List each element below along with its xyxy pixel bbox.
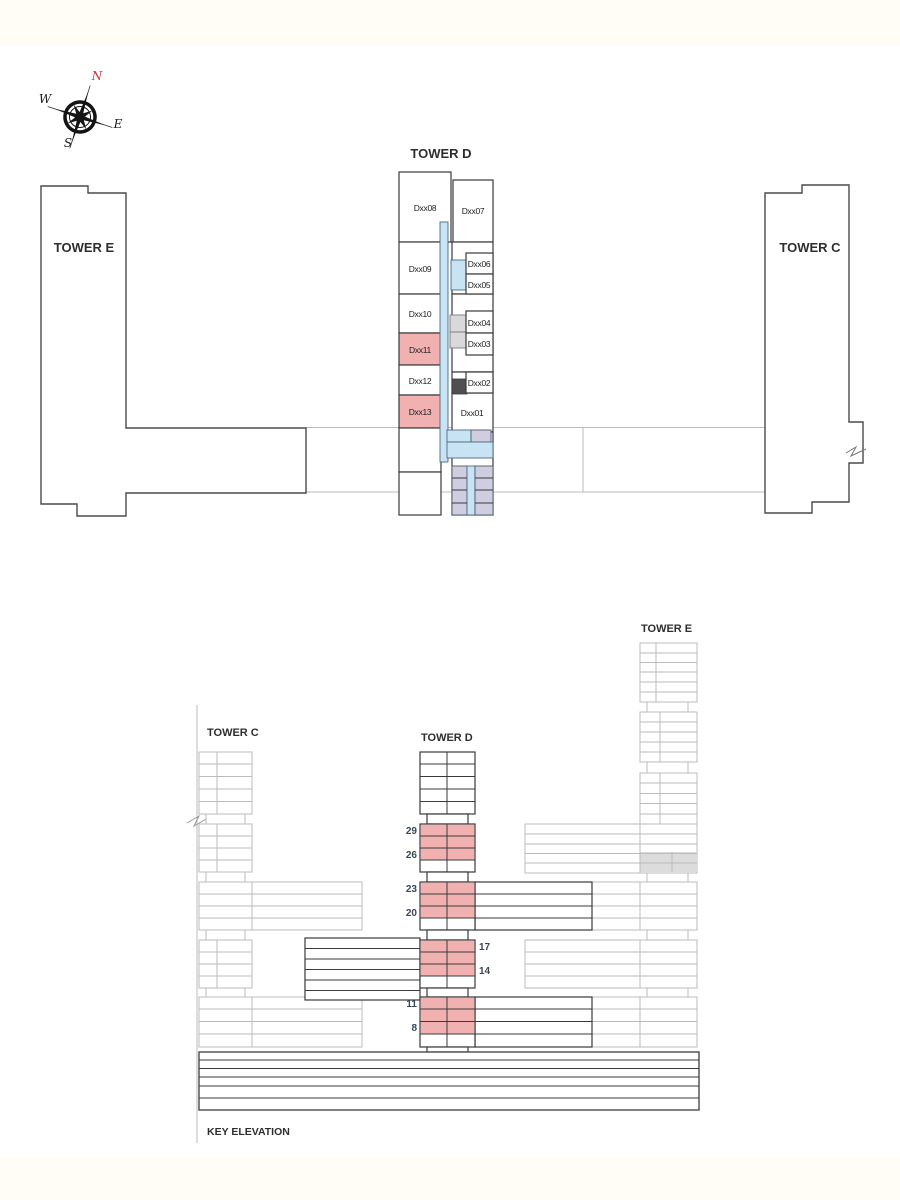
floor-label-23: 23 xyxy=(406,884,418,895)
drawing: Dxx08 Dxx09 Dxx10 Dxx11 Dxx12 Dxx13 Dxx0… xyxy=(0,0,900,1200)
scan-tint-bottom xyxy=(0,1155,900,1200)
plan-unit-dxx06-label: Dxx06 xyxy=(468,259,491,269)
plan-lower-box-2 xyxy=(399,472,441,515)
floor-label-14: 14 xyxy=(479,966,491,977)
compass-south-label: S xyxy=(64,136,72,150)
corridor-vertical xyxy=(440,222,448,462)
plan-tower-e-label: TOWER E xyxy=(54,240,115,255)
compass-east-label: E xyxy=(113,117,123,131)
plan-unit-dxx08-label: Dxx08 xyxy=(414,203,437,213)
service-block-2 xyxy=(450,332,466,348)
corridor-horizontal xyxy=(447,442,493,458)
elevation-tower-e-label: TOWER E xyxy=(641,623,692,635)
tower-d-plan: Dxx08 Dxx09 Dxx10 Dxx11 Dxx12 Dxx13 Dxx0… xyxy=(399,172,493,515)
plan-tower-c-label: TOWER C xyxy=(779,240,841,255)
plan-unit-dxx03-label: Dxx03 xyxy=(468,339,491,349)
plan-unit-dxx13-label: Dxx13 xyxy=(409,407,432,417)
tower-d-elevation-column xyxy=(420,752,475,1052)
key-elevation: TOWER C TOWER D TOWER E KEY ELEVATION 29… xyxy=(187,623,699,1143)
compass-north-label: N xyxy=(91,69,103,83)
elevation-tower-d-label: TOWER D xyxy=(421,732,473,744)
plan-unit-dxx05-label: Dxx05 xyxy=(468,280,491,290)
elevation-tower-c-label: TOWER C xyxy=(207,727,259,739)
dark-service-block xyxy=(452,379,467,394)
plan-unit-dxx12-label: Dxx12 xyxy=(409,376,432,386)
floor-label-8: 8 xyxy=(411,1023,417,1034)
plan-unit-dxx10-label: Dxx10 xyxy=(409,309,432,319)
key-elevation-title: KEY ELEVATION xyxy=(207,1126,290,1138)
compass-west-label: W xyxy=(39,92,53,106)
plan-unit-dxx01-label: Dxx01 xyxy=(461,408,484,418)
floor-label-17: 17 xyxy=(479,942,491,953)
tower-c-plan-outline xyxy=(765,185,863,513)
key-plan: Dxx08 Dxx09 Dxx10 Dxx11 Dxx12 Dxx13 Dxx0… xyxy=(37,69,866,516)
floor-label-20: 20 xyxy=(406,908,418,919)
plan-unit-dxx02-label: Dxx02 xyxy=(468,378,491,388)
architectural-key-plan-page: Dxx08 Dxx09 Dxx10 Dxx11 Dxx12 Dxx13 Dxx0… xyxy=(0,0,900,1200)
plan-unit-dxx11-label: Dxx11 xyxy=(409,345,432,355)
podium xyxy=(199,1052,699,1110)
gray-highlight-cells xyxy=(640,852,697,872)
floor-label-26: 26 xyxy=(406,850,418,861)
compass-rose: N W E S xyxy=(37,69,122,159)
tower-e-plan-outline xyxy=(41,186,306,516)
plan-unit-dxx04-label: Dxx04 xyxy=(468,318,491,328)
corridor-elbow xyxy=(447,430,471,442)
plan-lower-box-1 xyxy=(399,428,441,472)
site-reference-lines xyxy=(306,428,766,493)
scan-tint-top xyxy=(0,0,900,46)
floor-label-29: 29 xyxy=(406,826,418,837)
plan-unit-dxx07-label: Dxx07 xyxy=(462,206,485,216)
service-block-1 xyxy=(450,315,466,332)
plan-unit-dxx09-label: Dxx09 xyxy=(409,264,432,274)
floor-label-11: 11 xyxy=(406,999,417,1010)
core-corridor-mid xyxy=(467,466,475,515)
core-box-upper xyxy=(471,430,491,442)
plan-tower-d-title: TOWER D xyxy=(410,146,471,161)
corridor-lobby-block xyxy=(451,260,466,290)
